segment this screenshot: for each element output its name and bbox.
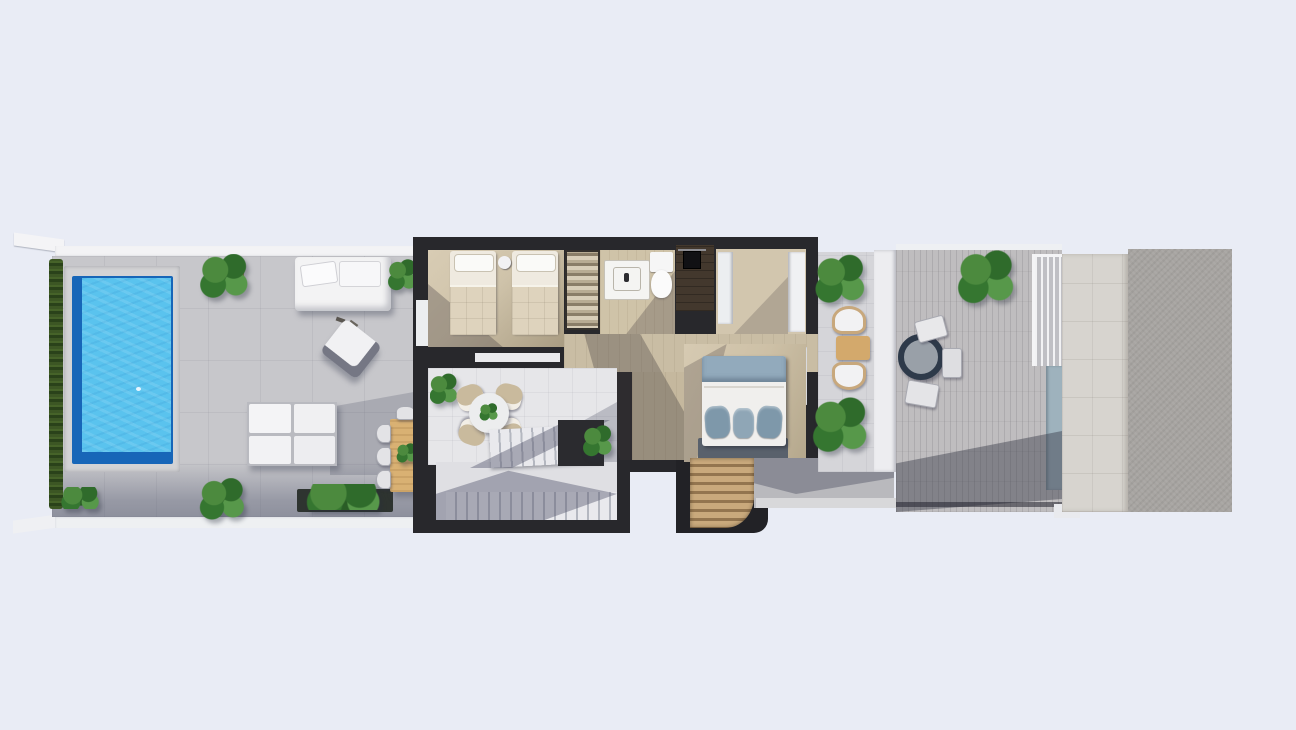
master-pillow-right <box>756 405 783 439</box>
balcony-divider-wall <box>874 250 896 472</box>
balcony-chair-bottom <box>832 362 866 390</box>
closet-panel-left <box>718 252 733 324</box>
floorplan-scene <box>0 0 1296 730</box>
balcony-chair-top <box>832 306 866 334</box>
toilet-bowl <box>651 270 672 298</box>
long-planter-foliage <box>299 484 391 510</box>
master-bed-blanket <box>702 356 786 382</box>
closet-panel-right <box>788 252 805 332</box>
shower-head <box>684 252 700 268</box>
glass-railing-top-right <box>1032 254 1062 366</box>
bed-pillow <box>516 254 556 272</box>
daybed-pillow <box>300 261 339 288</box>
stair-plant <box>583 424 613 458</box>
master-pillow-left <box>704 405 731 439</box>
balcony-plant-top <box>814 254 868 304</box>
daybed-pillow-2 <box>339 261 381 287</box>
terrace-plant <box>956 250 1018 304</box>
pool-sparkle <box>136 387 141 391</box>
roof-terrace-bottom-edge <box>896 502 1062 507</box>
small-bushes-bottom-left <box>58 487 104 509</box>
potted-plant-deck-bottom <box>198 478 248 520</box>
master-pillow-mid <box>733 408 754 438</box>
master-bed-fold <box>704 386 784 388</box>
sun-daybed <box>295 257 391 311</box>
terrace-door-left <box>416 300 428 346</box>
sofa-cushion <box>294 436 336 465</box>
single-bed-1 <box>450 251 496 333</box>
entry-pergola <box>690 458 754 528</box>
faucet-dot <box>624 273 629 282</box>
bed-blanket <box>450 285 496 335</box>
concrete-pad <box>1128 249 1232 512</box>
entry-side-deck-step <box>756 498 896 508</box>
balcony-side-table <box>836 336 870 360</box>
sofa-cushion <box>249 404 291 433</box>
living-potted-plant <box>430 372 458 406</box>
toilet <box>650 252 673 272</box>
pool-water <box>82 278 171 452</box>
bed-blanket <box>512 285 558 335</box>
privacy-hedge <box>49 259 63 509</box>
window-sill-bedroom <box>475 353 560 362</box>
nightstand-round <box>498 256 511 269</box>
shower-arm <box>678 249 706 251</box>
sofa-cushion <box>249 436 291 465</box>
sofa-cushion <box>294 404 336 433</box>
table-plant <box>479 403 499 421</box>
single-bed-2 <box>512 251 558 333</box>
open-wardrobe <box>565 250 600 330</box>
balcony-plant-bottom <box>812 396 870 454</box>
sectional-sofa <box>247 402 337 466</box>
stone-paving-strip <box>1062 254 1128 512</box>
dining-chair <box>376 470 391 489</box>
dining-chair <box>376 424 391 443</box>
dining-chair <box>376 447 391 466</box>
vanity-sink <box>604 260 650 300</box>
terrace-chair-right <box>942 348 962 378</box>
bed-pillow <box>454 254 494 272</box>
potted-plant-pool-top <box>198 254 252 298</box>
